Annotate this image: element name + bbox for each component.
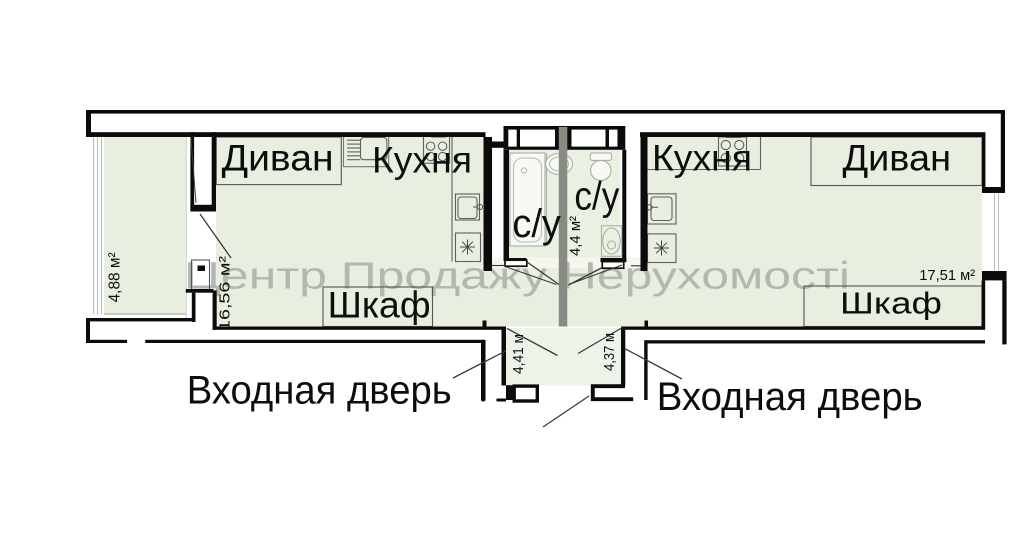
svg-text:Шкаф: Шкаф	[840, 286, 942, 321]
svg-text:4,37 м: 4,37 м	[601, 333, 618, 371]
svg-text:с/у: с/у	[574, 175, 619, 219]
svg-text:с/у: с/у	[512, 202, 561, 246]
svg-text:Диван: Диван	[222, 138, 334, 179]
svg-text:4,41 м: 4,41 м	[510, 334, 527, 374]
svg-text:Кухня: Кухня	[372, 140, 472, 181]
svg-text:Кухня: Кухня	[652, 137, 752, 178]
svg-text:17,51 м²: 17,51 м²	[919, 267, 975, 284]
svg-text:4,88 м²: 4,88 м²	[107, 252, 124, 303]
svg-text:16,56 м²: 16,56 м²	[217, 256, 234, 331]
svg-text:Диван: Диван	[843, 138, 952, 179]
svg-text:Входная дверь: Входная дверь	[657, 375, 923, 419]
svg-text:4,4 м²: 4,4 м²	[567, 216, 584, 256]
svg-text:Входная дверь: Входная дверь	[187, 368, 452, 412]
svg-text:Шкаф: Шкаф	[328, 285, 431, 326]
